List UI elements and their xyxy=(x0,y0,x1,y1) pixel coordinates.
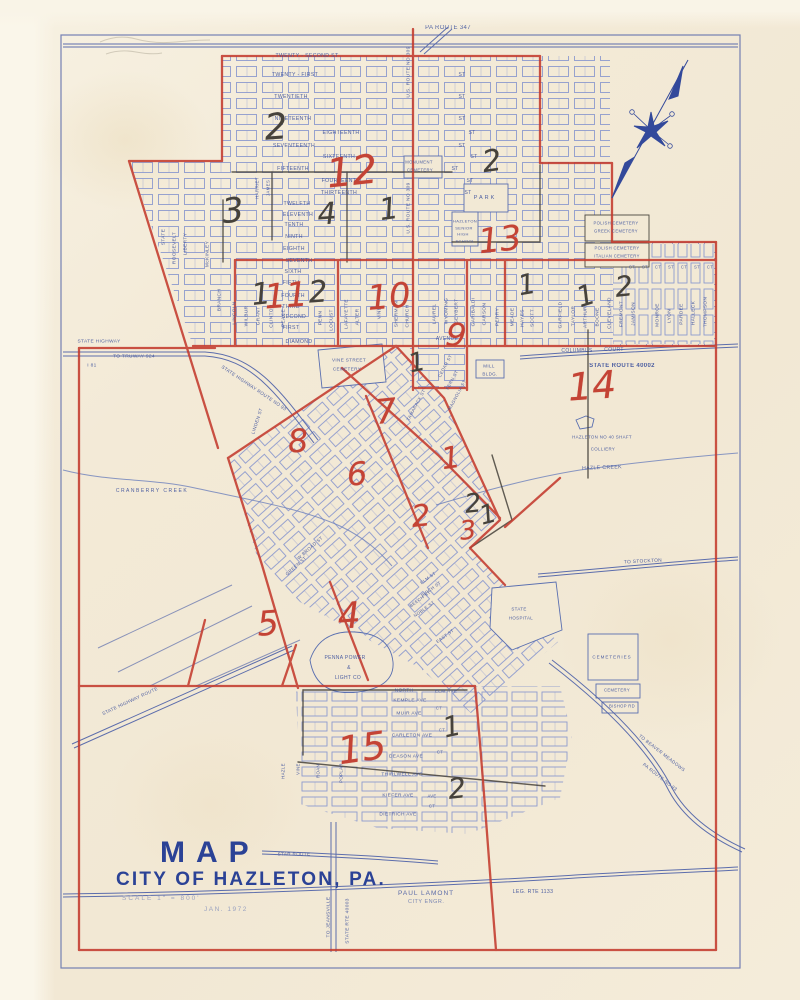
map-line-art xyxy=(0,0,800,1000)
map-subtitle: CITY OF HAZLETON, PA. xyxy=(116,869,386,891)
map-scale-note: SCALE 1" = 800' xyxy=(122,895,201,902)
map-date: JAN. 1972 xyxy=(204,906,248,913)
street-grid-south xyxy=(296,686,572,834)
pencil-note xyxy=(100,37,210,54)
north-arrow-icon xyxy=(612,60,688,198)
map-engineer-name: PAUL LAMONT xyxy=(398,890,454,897)
map-title: MAP xyxy=(160,836,260,870)
map-page: PA ROUTE 347U.S. ROUTE NO 309U.S. ROUTE … xyxy=(0,0,800,1000)
map-engineer-title: CITY ENGR. xyxy=(408,899,444,905)
street-grid-downtown xyxy=(228,346,558,714)
